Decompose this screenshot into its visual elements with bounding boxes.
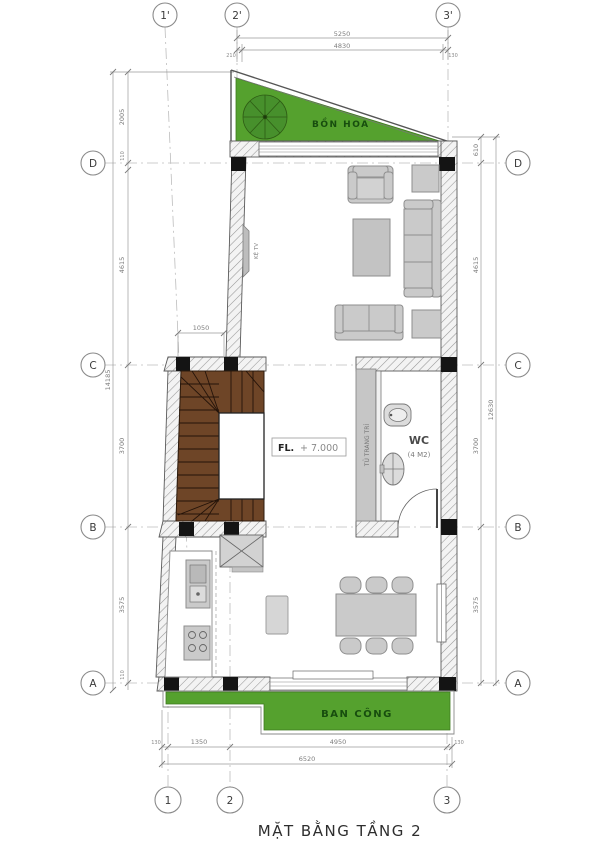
column-C2 (224, 357, 238, 371)
cabinet-label: TỦ TRANG TRÍ (363, 424, 371, 468)
balcony-grass (166, 692, 450, 730)
level-label: FL. + 7.000 (272, 438, 346, 456)
column-B1 (179, 522, 194, 536)
dim-stair: 1050 (193, 324, 210, 332)
dim-left-a-offset: 110 (120, 670, 126, 680)
column-C1 (176, 357, 190, 371)
level-value: + 7.000 (300, 443, 338, 454)
window-right (437, 584, 446, 642)
bubble-label-left-C: C (89, 360, 96, 372)
balcony-label: BAN CÔNG (321, 707, 393, 720)
bubble-label-right-A: A (514, 678, 522, 690)
dim-top-inner: 4830 (334, 42, 351, 50)
tv-shelf-label: KỆ TV (252, 243, 260, 259)
dim-right-d-offset: 610 (472, 144, 480, 156)
stair-void (219, 413, 264, 499)
level-prefix: FL. (278, 443, 294, 454)
wall-wc-left (376, 371, 381, 521)
dining-chair (366, 638, 387, 654)
bubble-label-right-C: C (514, 360, 521, 372)
dim-left-cb: 3700 (118, 438, 126, 455)
dim-right-ba: 3575 (472, 597, 480, 614)
dim-top-total: 5250 (334, 30, 351, 38)
floor-plan-page: 5250 4830 210 130 2005 110 4615 3700 357… (0, 0, 606, 854)
floor-plan-drawing: 5250 4830 210 130 2005 110 4615 3700 357… (0, 0, 606, 854)
dim-left-d-offset: 110 (120, 151, 126, 161)
bubble-label-1-prime: 1' (160, 10, 170, 22)
dim-left-dc: 4615 (118, 257, 126, 274)
dim-top-left-end: 210 (226, 53, 236, 59)
dim-left-overall: 14185 (104, 370, 112, 391)
dining-set (336, 577, 416, 654)
bubble-label-1: 1 (165, 795, 172, 807)
balcony: BAN CÔNG (163, 691, 454, 734)
sofa-small (335, 305, 403, 340)
dim-right-dc: 4615 (472, 257, 480, 274)
bubble-label-2: 2 (227, 795, 234, 807)
bubble-label-3: 3 (444, 795, 451, 807)
bubble-label-right-B: B (514, 522, 521, 534)
dim-top-right-end: 130 (448, 53, 458, 59)
cabinet: TỦ TRANG TRÍ (356, 369, 381, 521)
wc-door (398, 489, 437, 528)
bubble-label-left-B: B (89, 522, 96, 534)
coffee-table (353, 219, 390, 276)
balcony-door (270, 678, 407, 690)
side-table-top (412, 165, 439, 192)
dining-chair (340, 638, 361, 654)
armchair (348, 166, 393, 203)
column-D3 (439, 157, 455, 171)
wc-area-label: (4 M2) (408, 451, 431, 459)
dining-chair (366, 577, 387, 593)
living-room: KỆ TV (243, 165, 441, 340)
bubble-label-right-D: D (514, 158, 522, 170)
column-C3 (441, 357, 457, 372)
cabinet-box (220, 535, 263, 572)
wc-room: WC (4 M2) (380, 404, 437, 528)
dim-bottom-seg1: 1350 (191, 738, 208, 746)
bubble-label-3-prime: 3' (443, 10, 453, 22)
stove (184, 626, 210, 660)
kitchen-sink (186, 560, 210, 608)
wall-bottom-right (407, 677, 441, 691)
dim-bottom-total: 6520 (299, 755, 316, 763)
kitchen-dining (165, 535, 446, 677)
dining-table (336, 594, 416, 636)
bubble-label-2-prime: 2' (232, 10, 242, 22)
kitchen-island (266, 596, 288, 634)
toilet (384, 404, 411, 426)
dim-right-cb: 3700 (472, 438, 480, 455)
column-B2 (224, 522, 239, 536)
side-table-bottom (412, 310, 441, 338)
column-A2 (223, 677, 238, 691)
column-A3 (439, 677, 456, 691)
dim-bottom-left-end: 130 (151, 740, 161, 746)
bubble-label-left-D: D (89, 158, 97, 170)
column-B3 (441, 519, 457, 535)
dim-left-top: 2005 (118, 109, 126, 126)
tv-shelf: KỆ TV (243, 225, 260, 277)
wall-wc-bottom (356, 521, 398, 537)
column-D2 (231, 157, 246, 171)
balcony-door-threshold (293, 671, 373, 679)
column-A1 (164, 677, 179, 691)
sofa-large (404, 200, 441, 297)
drawing-title: MẶT BẰNG TẦNG 2 (258, 819, 422, 840)
dining-chair (392, 577, 413, 593)
flower-box: BỒN HOA (231, 70, 453, 146)
dim-right-overall: 12630 (487, 400, 495, 421)
dim-left-ba: 3575 (118, 597, 126, 614)
dim-bottom-right-end: 130 (454, 740, 464, 746)
bubble-label-left-A: A (89, 678, 97, 690)
staircase: 1050 (175, 324, 264, 521)
tree-symbol (243, 95, 287, 139)
dim-bottom-seg2: 4950 (330, 738, 347, 746)
wc-label: WC (409, 434, 429, 447)
dining-chair (340, 577, 361, 593)
sink (380, 453, 404, 485)
dining-chair (392, 638, 413, 654)
